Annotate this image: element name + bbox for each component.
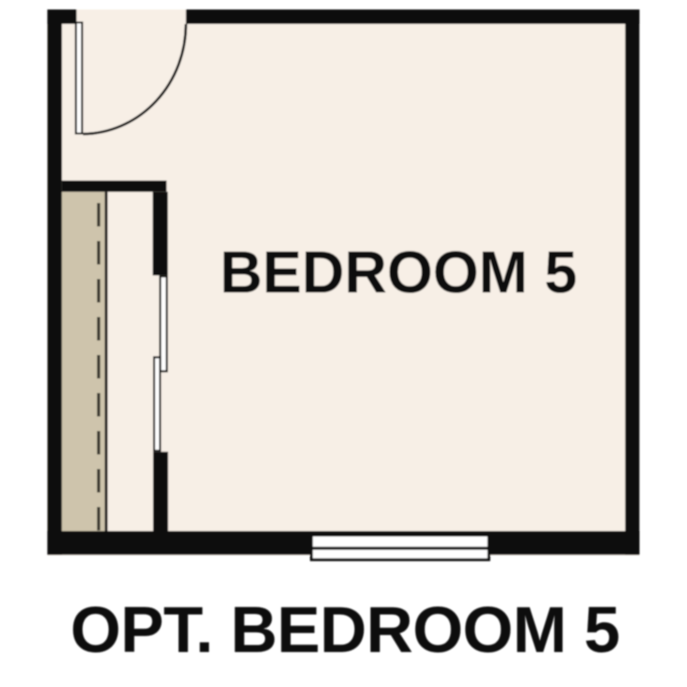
svg-text:OPT. BEDROOM 5: OPT. BEDROOM 5 (70, 593, 619, 666)
svg-text:BEDROOM 5: BEDROOM 5 (220, 239, 577, 305)
